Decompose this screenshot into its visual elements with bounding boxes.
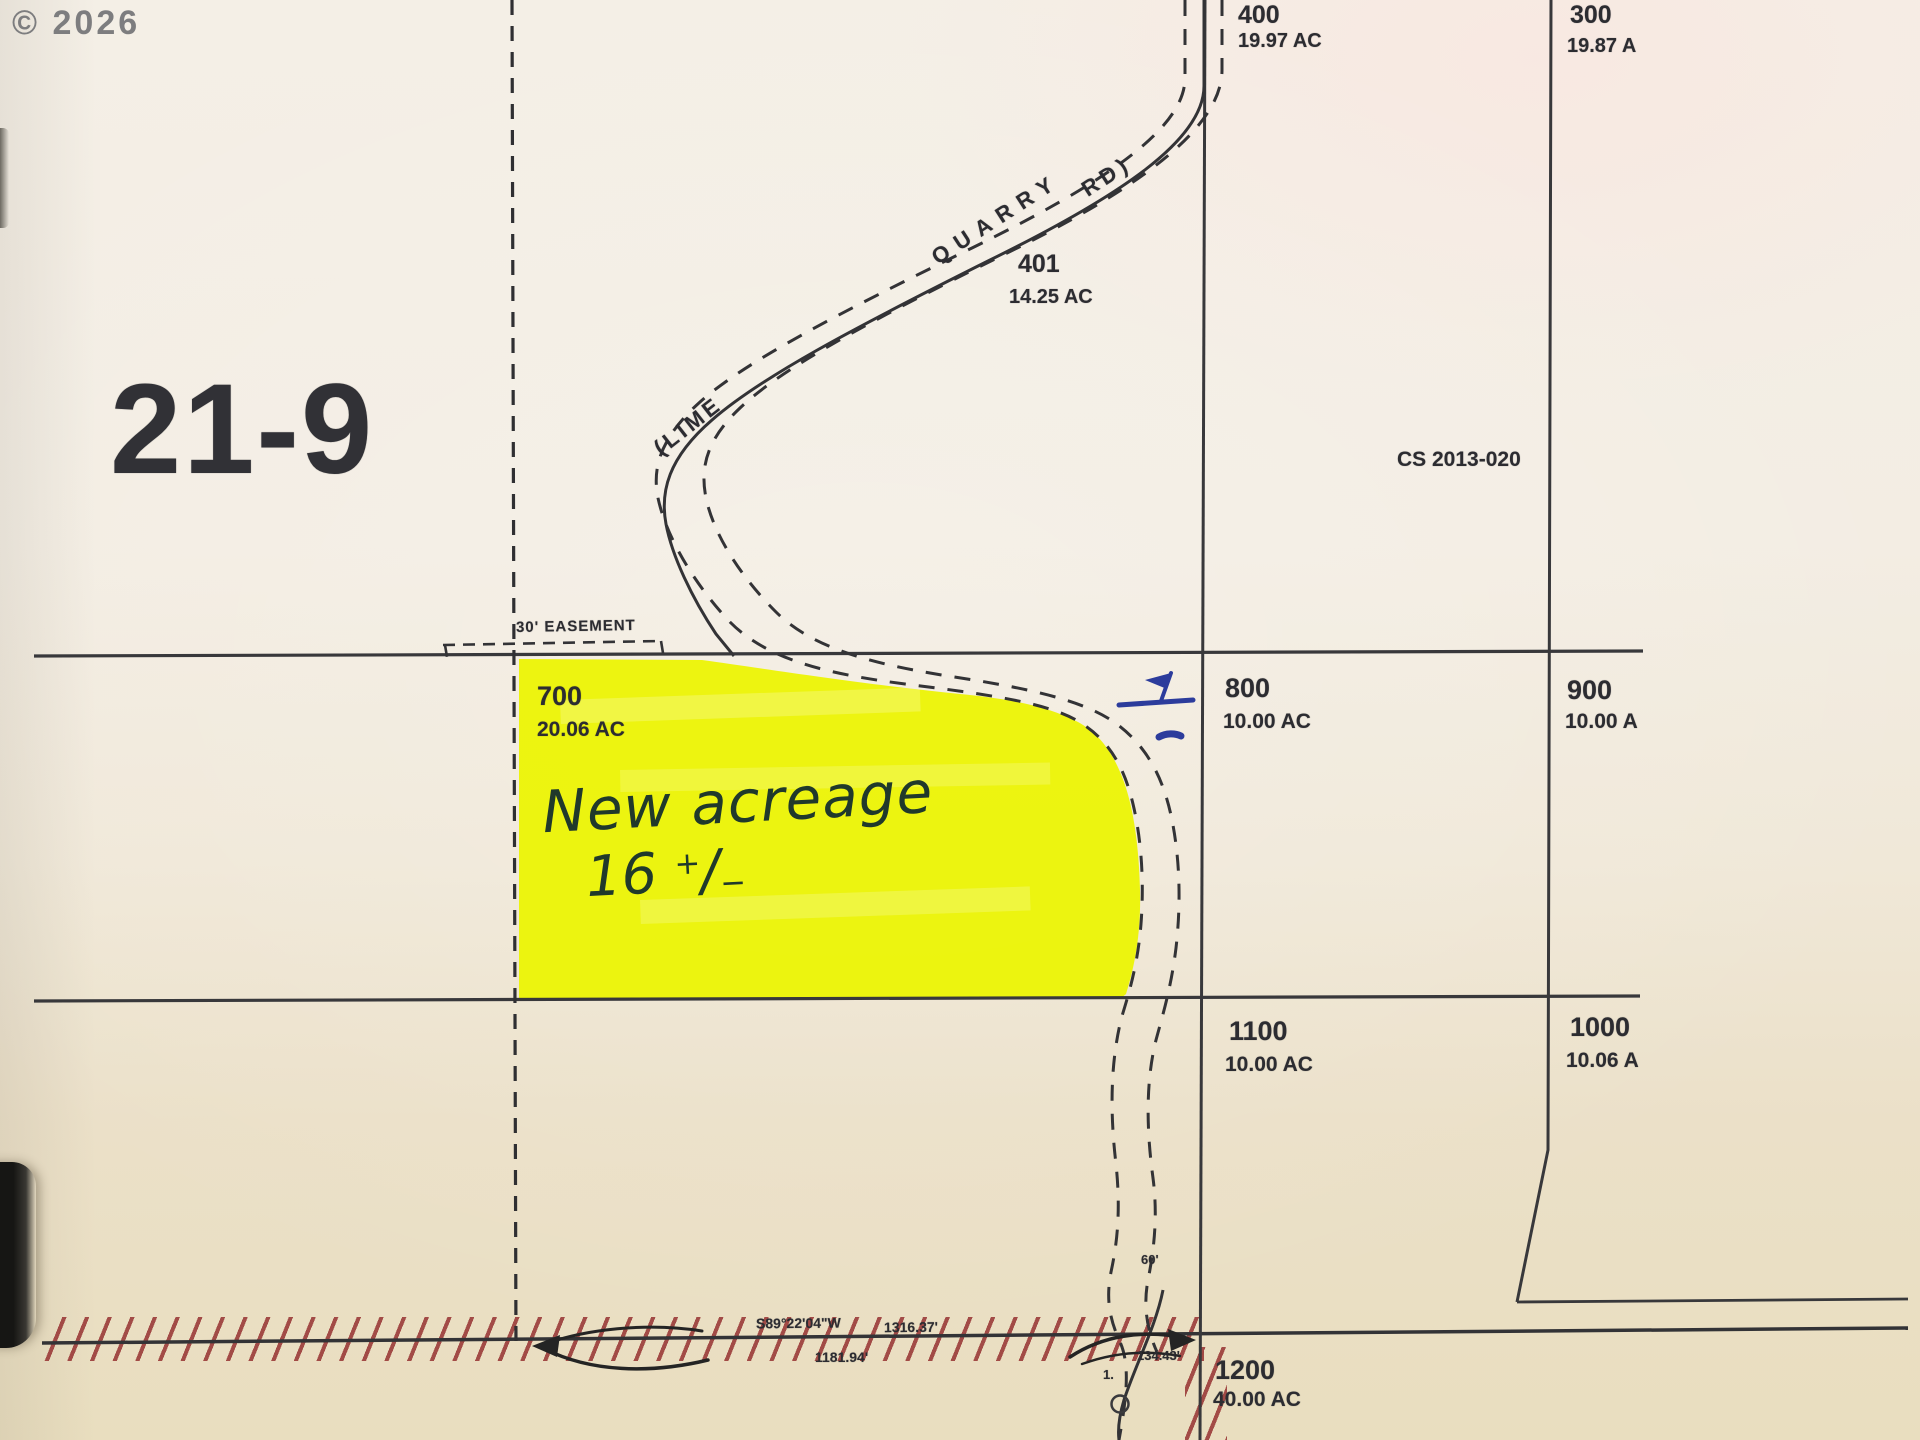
- blue-pen-mark: [1119, 673, 1193, 737]
- parcel-300-number: 300: [1570, 3, 1612, 28]
- road-width-label: 60': [1141, 1253, 1159, 1266]
- map-sheet-code: 21-9: [110, 366, 374, 494]
- parcel-900-acreage: 10.00 A: [1565, 711, 1638, 732]
- parcel-400-acreage: 19.97 AC: [1238, 31, 1322, 51]
- boundary-line-horizontal-upper: [34, 651, 1643, 656]
- parcel-700-acreage: 20.06 AC: [537, 719, 625, 740]
- parcel-1100-acreage: 10.00 AC: [1225, 1054, 1313, 1075]
- parcel-1200-number: 1200: [1215, 1357, 1275, 1384]
- parcel-401-number: 401: [1018, 252, 1060, 277]
- parcel-401-acreage: 14.25 AC: [1009, 287, 1093, 307]
- survey-reference: CS 2013-020: [1397, 449, 1521, 470]
- distance-left-label: 1181.94': [815, 1350, 868, 1364]
- parcel-1200-acreage: 40.00 AC: [1213, 1389, 1301, 1410]
- handwritten-slash: /: [699, 838, 721, 904]
- boundary-line-vertical-center: [1200, 0, 1205, 1440]
- distance-right-label: 134.43': [1137, 1349, 1180, 1362]
- parcel-300-acreage: 19.87 A: [1567, 36, 1636, 56]
- bearing-label: S89°22'04"W: [756, 1316, 841, 1331]
- photo-timestamp: © 2026: [12, 6, 140, 40]
- parcel-900-number: 900: [1567, 677, 1612, 704]
- parcel-1000-acreage: 10.06 A: [1566, 1050, 1639, 1071]
- plat-map-photo: © 2026 21-9 400 19.97 AC 300 19.87 A 401…: [0, 0, 1920, 1440]
- easement-label: 30' EASEMENT: [516, 618, 636, 635]
- handwritten-plus: +: [674, 845, 702, 882]
- road-solid-south-segment: [1119, 1290, 1163, 1440]
- parcel-1100-number: 1100: [1229, 1018, 1288, 1045]
- road-centerline-solid: [664, 0, 1204, 656]
- handwritten-acreage-value: 16: [584, 841, 659, 910]
- boundary-line-bottom-east-stub: [1517, 1299, 1908, 1302]
- pen-arrow-left: [532, 1327, 708, 1369]
- handwritten-note: New acreage 16 +/−: [541, 762, 938, 910]
- parcel-400-number: 400: [1238, 3, 1280, 28]
- parcel-700-number: 700: [537, 683, 582, 710]
- parcel-1000-number: 1000: [1570, 1014, 1630, 1041]
- section-line-bottom: [42, 1328, 1908, 1343]
- handwritten-minus: −: [719, 864, 747, 901]
- distance-total-label: 1316.37': [884, 1320, 938, 1334]
- survey-point-number: 1.: [1103, 1368, 1114, 1381]
- parcel-800-number: 800: [1225, 675, 1270, 702]
- boundary-line-vertical-west-dashed: [512, 0, 516, 1352]
- parcel-800-acreage: 10.00 AC: [1223, 711, 1311, 732]
